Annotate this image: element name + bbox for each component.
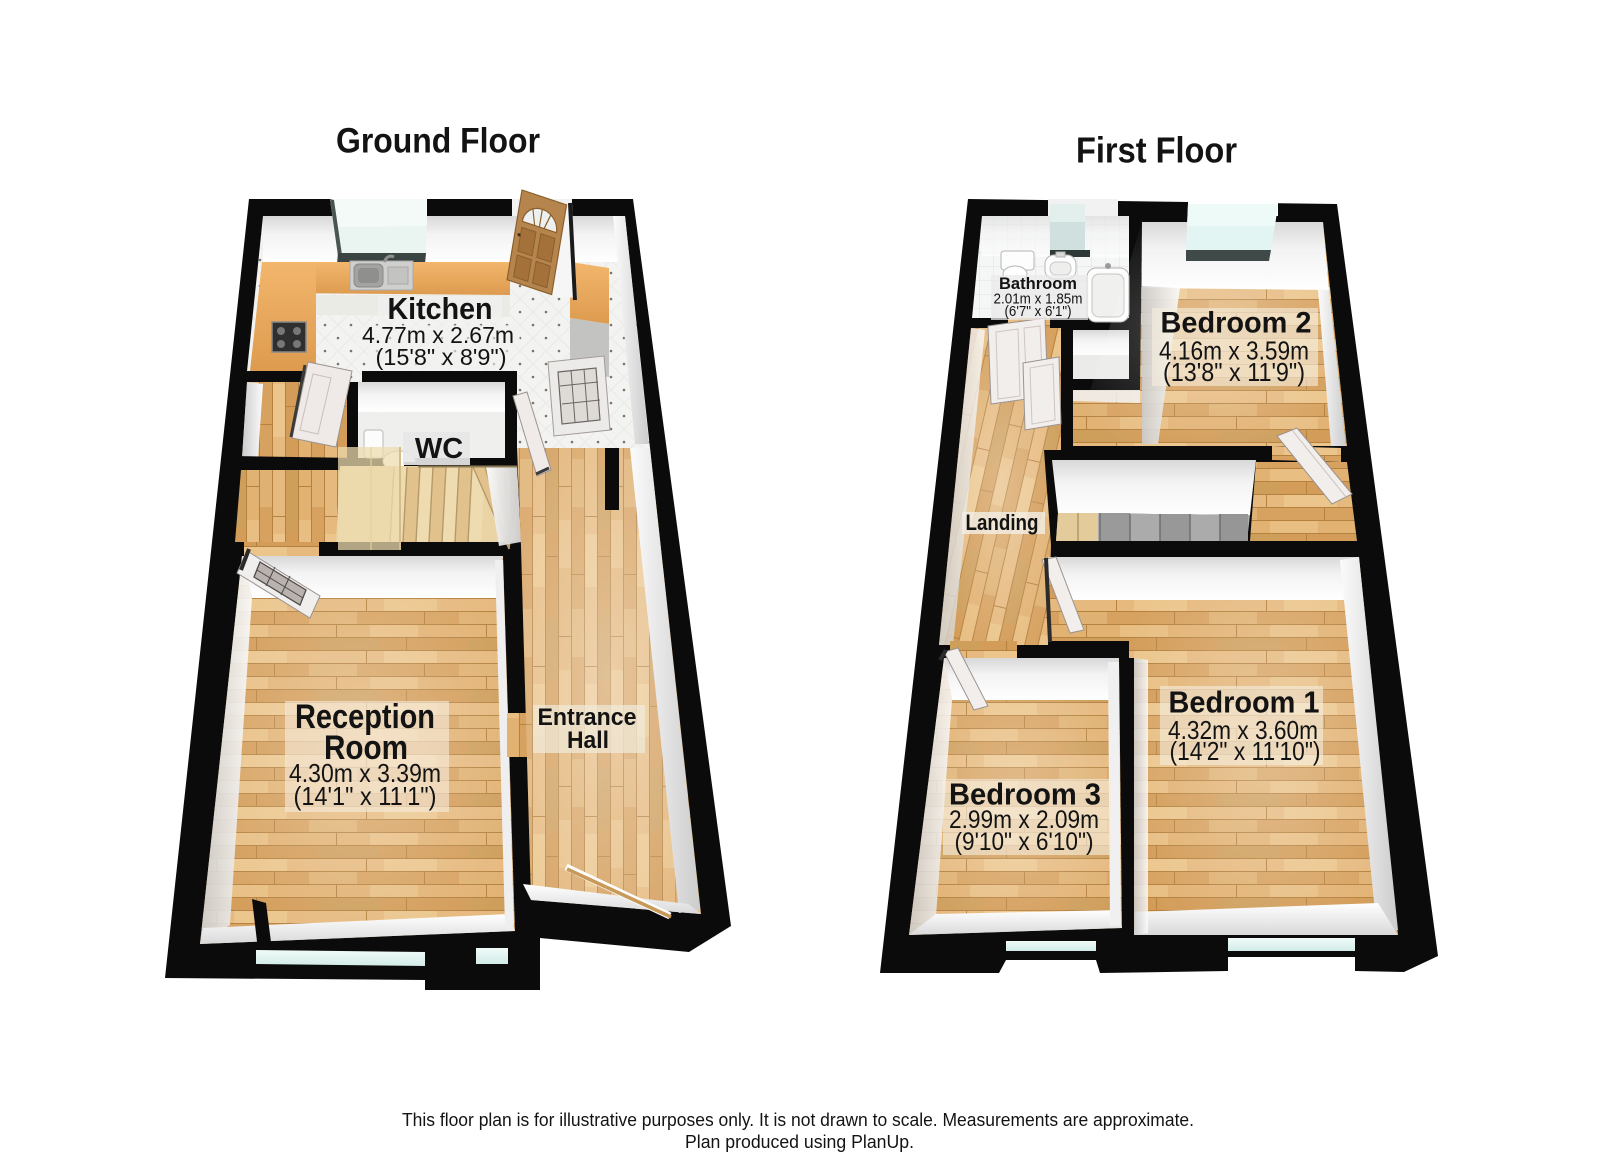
- svg-text:Landing: Landing: [966, 510, 1039, 535]
- svg-text:First Floor: First Floor: [1076, 130, 1237, 171]
- svg-text:Hall: Hall: [567, 727, 609, 754]
- svg-text:This floor plan is for illustr: This floor plan is for illustrative purp…: [402, 1110, 1194, 1130]
- svg-text:Kitchen: Kitchen: [388, 291, 493, 326]
- svg-text:(14'2" x 11'10"): (14'2" x 11'10"): [1170, 736, 1321, 766]
- svg-text:WC: WC: [415, 433, 463, 465]
- svg-text:(14'1" x 11'1"): (14'1" x 11'1"): [294, 781, 437, 811]
- svg-text:(15'8" x 8'9"): (15'8" x 8'9"): [376, 344, 507, 370]
- svg-text:(13'8" x 11'9"): (13'8" x 11'9"): [1163, 357, 1305, 387]
- svg-text:(9'10" x 6'10"): (9'10" x 6'10"): [955, 828, 1094, 856]
- svg-text:Bathroom: Bathroom: [999, 274, 1077, 293]
- svg-text:Ground Floor: Ground Floor: [336, 122, 540, 161]
- svg-text:(6'7" x 6'1"): (6'7" x 6'1"): [1005, 304, 1072, 320]
- svg-text:Plan produced using PlanUp.: Plan produced using PlanUp.: [685, 1132, 914, 1152]
